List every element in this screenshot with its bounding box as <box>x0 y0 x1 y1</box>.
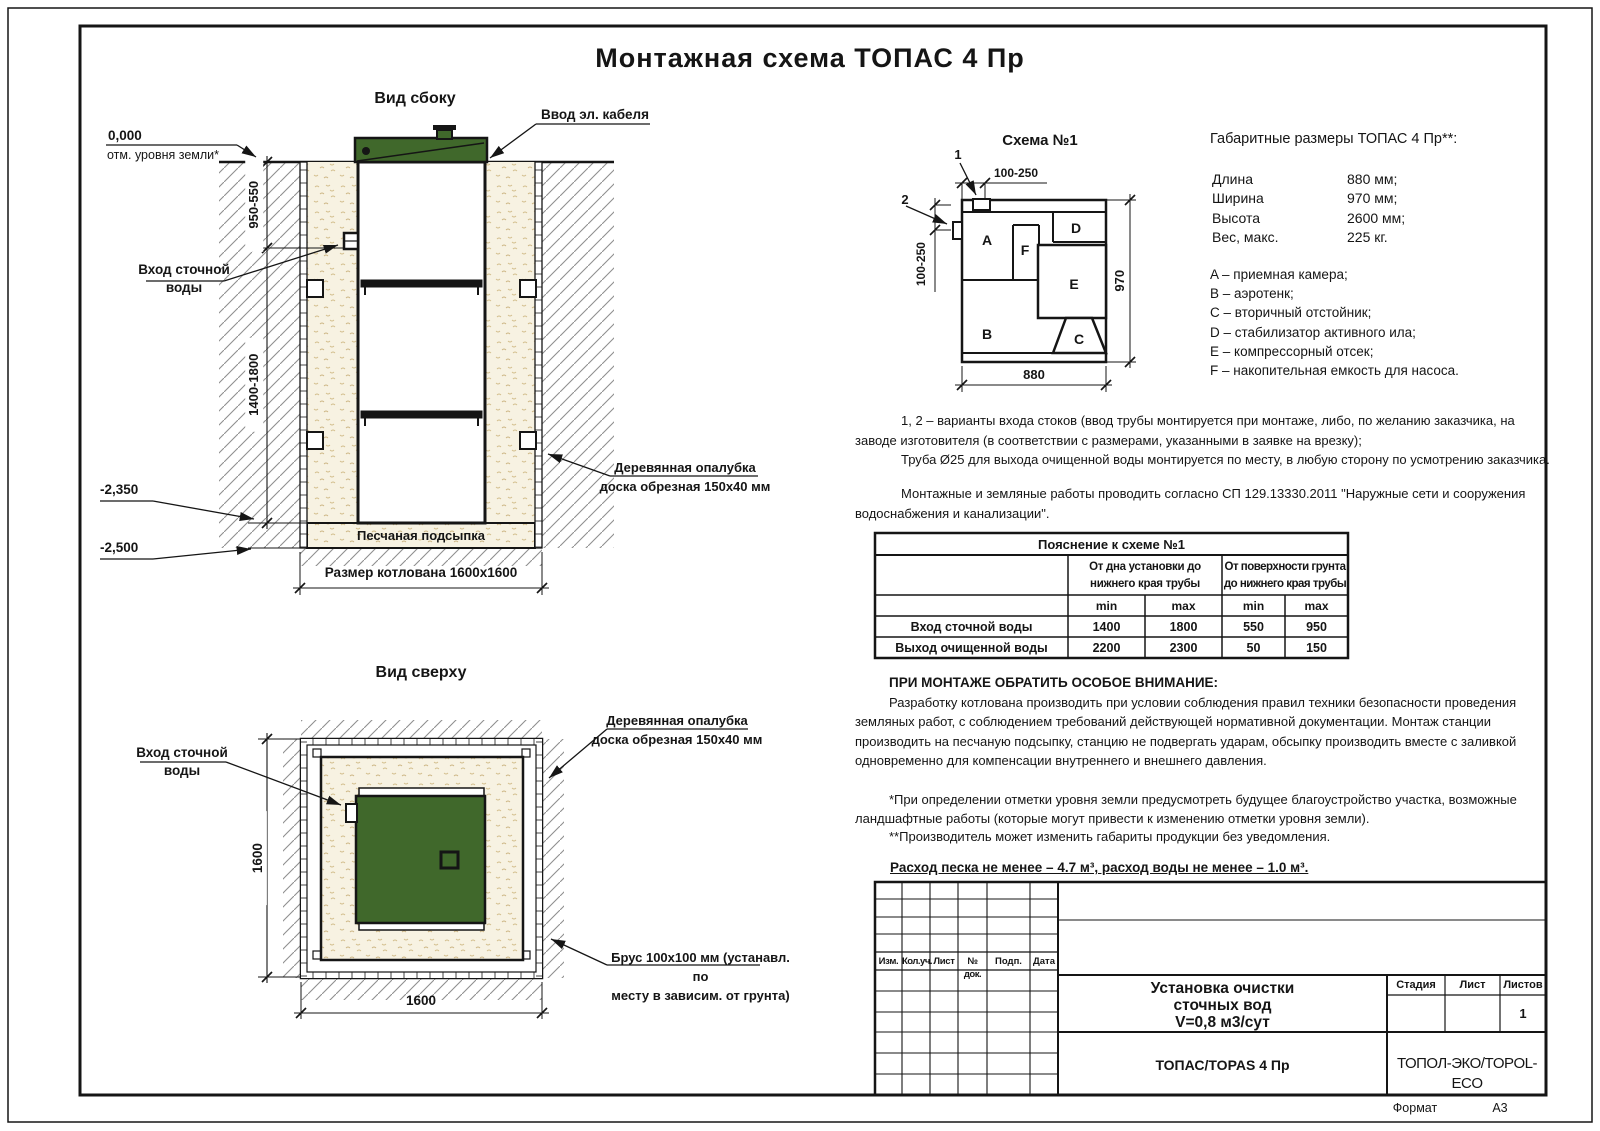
schema-dim-top: 100-250 <box>976 165 1056 181</box>
stamp-header-izm: Изм. <box>875 956 902 969</box>
schema-1-drawing <box>906 163 1136 392</box>
note-outlet-pipe: Труба Ø25 для выхода очищенной воды монт… <box>855 450 1555 470</box>
stamp-header-podp: Подп. <box>987 956 1030 969</box>
dim-1600-vertical: 1600 <box>249 811 267 905</box>
stamp-model: ТОПАС/TOPAS 4 Пр <box>1058 1056 1387 1075</box>
stamp-header-data: Дата <box>1030 956 1058 969</box>
table-row2-v3: 50 <box>1222 640 1285 657</box>
table-row2-v1: 2200 <box>1068 640 1145 657</box>
schema-dim-left: 100-250 <box>913 224 929 304</box>
level-mark-2500: -2,500 <box>100 539 160 557</box>
vent-cap <box>433 125 456 130</box>
sand-fill-right <box>485 162 535 523</box>
sewage-inlet-stub-top <box>346 804 357 822</box>
sewage-inlet-stub <box>344 233 358 249</box>
table-row1-v3: 550 <box>1222 619 1285 636</box>
legend-item-c: C – вторичный отстойник; <box>1210 304 1550 322</box>
consumption-note: Расход песка не менее – 4.7 м³, расход в… <box>890 859 1510 877</box>
level-mark-2350: -2,350 <box>100 481 160 499</box>
table-title: Пояснение к схеме №1 <box>875 536 1348 554</box>
specs-heading: Габаритные размеры ТОПАС 4 Пр**: <box>1210 130 1550 150</box>
table-row2-v4: 150 <box>1285 640 1348 657</box>
spec-label-weight: Вес, макс. <box>1212 228 1342 247</box>
table-row1-v1: 1400 <box>1068 619 1145 636</box>
unit-lid-top <box>356 796 485 923</box>
sand-bedding-label: Песчаная подсыпка <box>321 527 521 545</box>
schema-title: Схема №1 <box>970 131 1110 151</box>
inlet-label-top: Вход сточной воды <box>122 744 242 780</box>
table-min-1: min <box>1068 598 1145 614</box>
dim-1400-1800: 1400-1800 <box>245 338 263 432</box>
stamp-header-koluch: Кол.уч. <box>902 956 930 969</box>
compartment-a: A <box>979 231 995 250</box>
spec-label-width: Ширина <box>1212 189 1342 208</box>
table-row2-v2: 2300 <box>1145 640 1222 657</box>
schema-dim-880: 880 <box>1004 366 1064 384</box>
ground-level-note: отм. уровня земли* <box>107 147 247 164</box>
dim-1600-horizontal: 1600 <box>371 992 471 1010</box>
footnote-landscaping: *При определении отметки уровня земли пр… <box>855 790 1555 829</box>
spec-value-height: 2600 мм; <box>1347 209 1467 228</box>
schema-marker-2: 2 <box>897 191 913 209</box>
table-min-2: min <box>1222 598 1285 614</box>
compartment-d: D <box>1068 219 1084 238</box>
stamp-sheet-label: Лист <box>1445 978 1500 993</box>
table-group-1: От дна установки до нижнего края трубы <box>1068 559 1222 592</box>
spec-label-height: Высота <box>1212 209 1342 228</box>
schema-dim-970: 970 <box>1111 236 1129 326</box>
drawing-sheet: Монтажная схема ТОПАС 4 Пр Вид сбоку Вво… <box>0 0 1600 1131</box>
top-view-title: Вид сверху <box>336 662 506 684</box>
side-view-title: Вид сбоку <box>330 88 500 110</box>
stamp-sheets-value: 1 <box>1500 1005 1546 1023</box>
tank-lid <box>355 125 487 162</box>
table-group-2: От поверхности грунта до нижнего края тр… <box>1222 559 1348 592</box>
note-works: Монтажные и земляные работы проводить со… <box>855 484 1555 523</box>
table-row1-label: Вход сточной воды <box>875 619 1068 636</box>
zero-level-mark: 0,000 <box>108 127 178 145</box>
inlet-variant-2 <box>953 222 962 239</box>
beam-label: Брус 100x100 мм (устанавл. по месту в за… <box>603 948 798 1005</box>
table-max-1: max <box>1145 598 1222 614</box>
table-row2-label: Выход очищенной воды <box>875 640 1068 657</box>
stamp-company: ТОПОЛ-ЭКО/TOPOL-ECO <box>1388 1054 1546 1095</box>
stamp-doc-title: Установка очистки сточных вод V=0,8 м3/с… <box>1058 980 1387 1031</box>
spec-value-weight: 225 кг. <box>1347 228 1467 247</box>
vent-pipe <box>437 130 452 139</box>
inlet-variant-1 <box>973 199 990 210</box>
formwork-wall-right <box>535 162 542 548</box>
attention-heading: ПРИ МОНТАЖЕ ОБРАТИТЬ ОСОБОЕ ВНИМАНИЕ: <box>855 674 1555 692</box>
table-row1-v2: 1800 <box>1145 619 1222 636</box>
spec-value-length: 880 мм; <box>1347 170 1467 189</box>
side-view-drawing <box>100 124 758 595</box>
table-max-2: max <box>1285 598 1348 614</box>
legend-item-b: B – аэротенк; <box>1210 285 1550 303</box>
table-row1-v4: 950 <box>1285 619 1348 636</box>
sand-fill-left <box>307 162 358 523</box>
stamp-sheets-label: Листов <box>1500 978 1546 993</box>
compartment-b: B <box>979 325 995 344</box>
legend-item-d: D – стабилизатор активного ила; <box>1210 324 1550 342</box>
stamp-header-list: Лист <box>930 956 958 969</box>
legend-item-e: E – компрессорный отсек; <box>1210 343 1550 361</box>
compartment-f: F <box>1017 241 1033 260</box>
dim-950-550: 950-550 <box>245 158 263 252</box>
legend-item-f: F – накопительная емкость для насоса. <box>1210 362 1550 380</box>
spec-value-width: 970 мм; <box>1347 189 1467 208</box>
note-inlet-variants: 1, 2 – варианты входа стоков (ввод трубы… <box>855 411 1555 450</box>
stamp-header-ndok: № док. <box>958 956 987 982</box>
pit-size-label: Размер котлована 1600x1600 <box>281 564 561 582</box>
tank-body <box>358 162 485 523</box>
cable-entry-label: Ввод эл. кабеля <box>520 106 670 124</box>
footnote-manufacturer: **Производитель может изменить габариты … <box>855 828 1555 846</box>
schema-marker-1: 1 <box>950 146 966 164</box>
attention-body: Разработку котлована производить при усл… <box>855 693 1555 770</box>
legend-item-a: A – приемная камера; <box>1210 266 1550 284</box>
formwork-label-top: Деревянная опалубка доска обрезная 150x4… <box>587 711 767 749</box>
format-value: А3 <box>1478 1100 1522 1117</box>
compartment-c: C <box>1071 330 1087 349</box>
compartment-e: E <box>1066 275 1082 294</box>
stamp-stage-label: Стадия <box>1387 978 1445 993</box>
page-title: Монтажная схема ТОПАС 4 Пр <box>460 40 1160 76</box>
spec-label-length: Длина <box>1212 170 1342 189</box>
format-label: Формат <box>1380 1100 1450 1117</box>
inlet-label-side: Вход сточной воды <box>124 261 244 297</box>
formwork-label-side: Деревянная опалубка доска обрезная 150x4… <box>595 458 775 496</box>
formwork-wall-left <box>300 162 307 548</box>
